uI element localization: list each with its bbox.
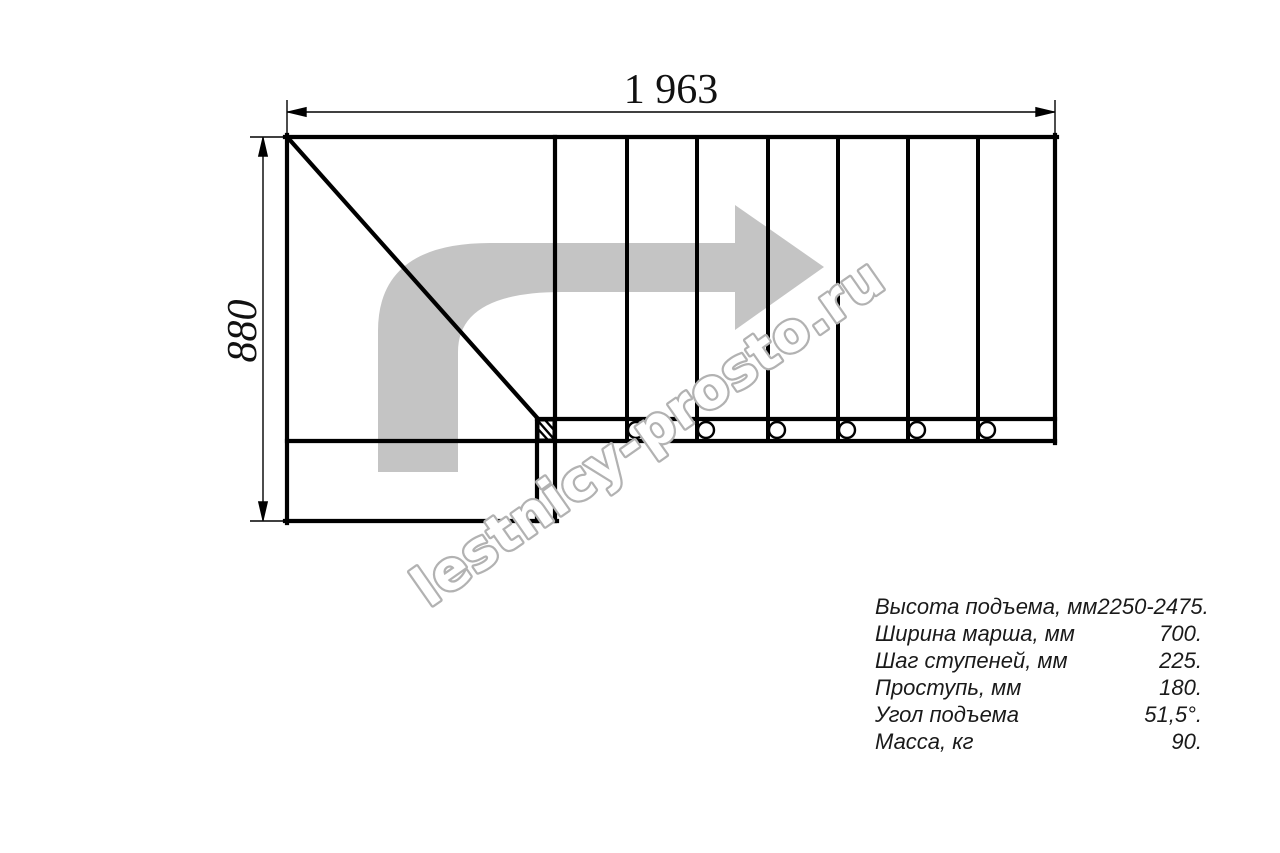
spec-value: 90. [974, 728, 1202, 755]
spec-label: Проступь, мм [875, 674, 1021, 701]
dimension-arrow-right [1036, 108, 1054, 116]
spec-table: Высота подъема, мм 2250-2475. Ширина мар… [875, 593, 1202, 755]
baluster-circle [839, 422, 855, 438]
spec-label: Масса, кг [875, 728, 974, 755]
spec-row: Шаг ступеней, мм 225. [875, 647, 1202, 674]
spec-row: Ширина марша, мм 700. [875, 620, 1202, 647]
spec-row: Высота подъема, мм 2250-2475. [875, 593, 1202, 620]
height-dimension-label: 880 [220, 300, 266, 363]
stair-plan-canvas: 1 963 880 lestnicy-prosto.ru Высота подъ… [0, 0, 1280, 853]
spec-label: Ширина марша, мм [875, 620, 1075, 647]
dimension-arrow-up [259, 138, 267, 156]
baluster-circle [979, 422, 995, 438]
spec-value: 180. [1021, 674, 1202, 701]
side-dimension: 880 [220, 137, 284, 521]
newel-post-hatch [538, 420, 554, 440]
spec-value: 700. [1075, 620, 1202, 647]
spec-row: Масса, кг 90. [875, 728, 1202, 755]
baluster-circle [909, 422, 925, 438]
baluster-circle [769, 422, 785, 438]
spec-value: 225. [1068, 647, 1202, 674]
spec-value: 2250-2475. [1097, 593, 1208, 620]
spec-value: 51,5°. [1019, 701, 1202, 728]
dimension-arrow-down [259, 502, 267, 520]
width-dimension-label: 1 963 [624, 67, 719, 113]
top-dimension: 1 963 [287, 67, 1055, 133]
spec-label: Угол подъема [875, 701, 1019, 728]
spec-row: Угол подъема 51,5°. [875, 701, 1202, 728]
dimension-arrow-left [288, 108, 306, 116]
spec-label: Шаг ступеней, мм [875, 647, 1068, 674]
spec-row: Проступь, мм 180. [875, 674, 1202, 701]
spec-label: Высота подъема, мм [875, 593, 1097, 620]
